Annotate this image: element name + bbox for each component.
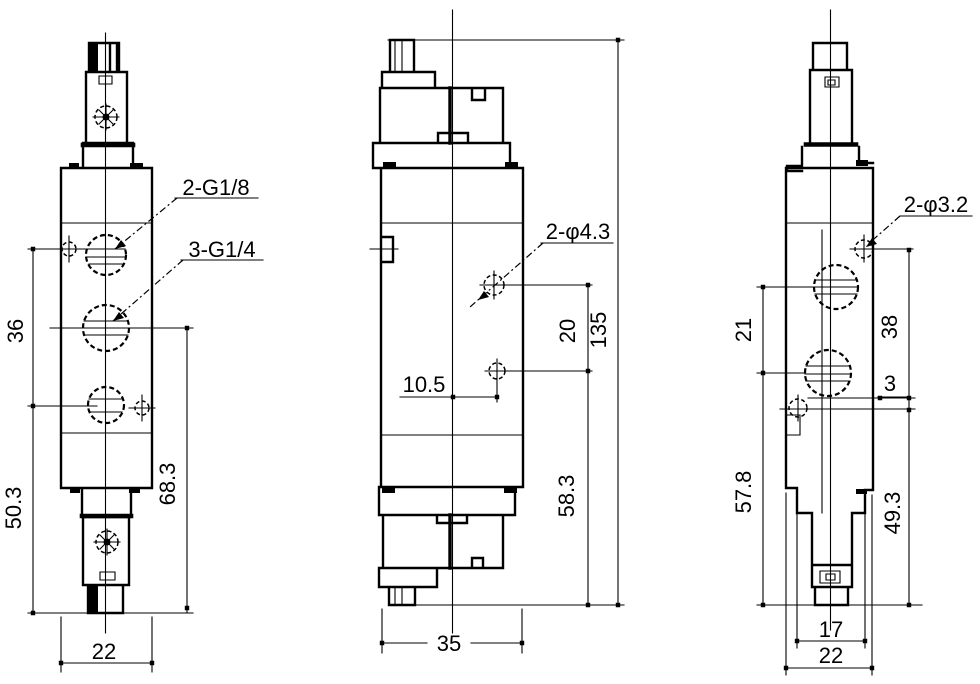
side-dim-hole-x-offset: 10.5	[403, 372, 446, 397]
paper-background	[0, 0, 980, 684]
back-dim-upper-span: 21	[731, 318, 756, 342]
back-dim-hole-spacing: 38	[877, 315, 902, 339]
front-dim-lower-section: 50.3	[1, 487, 26, 530]
side-dim-hole-spacing: 20	[555, 319, 580, 343]
back-dim-inner-width: 17	[819, 617, 843, 642]
back-dim-hole-to-base: 49.3	[880, 492, 905, 535]
back-dim-width: 22	[819, 643, 843, 668]
front-dim-port-to-base: 68.3	[155, 463, 180, 506]
side-hole-label: 2-φ4.3	[546, 219, 610, 244]
back-dim-body-height: 57.8	[731, 471, 756, 514]
front-port-label-top: 2-G1/8	[182, 175, 249, 200]
drawing-sheet: 2-G1/8 3-G1/4 36 50.3 68.3 22 2-φ4.3 10.…	[0, 0, 980, 684]
side-dim-total-height: 135	[586, 312, 611, 349]
side-dim-depth: 35	[437, 631, 461, 656]
side-dim-lower-height: 58.3	[554, 475, 579, 518]
front-port-label-mid: 3-G1/4	[188, 237, 255, 262]
front-dim-width: 22	[92, 639, 116, 664]
back-dim-hole-offset: 3	[884, 371, 896, 396]
technical-drawing-canvas: 2-G1/8 3-G1/4 36 50.3 68.3 22 2-φ4.3 10.…	[0, 0, 980, 684]
front-dim-port-spacing: 36	[3, 319, 28, 343]
back-hole-label: 2-φ3.2	[904, 192, 968, 217]
